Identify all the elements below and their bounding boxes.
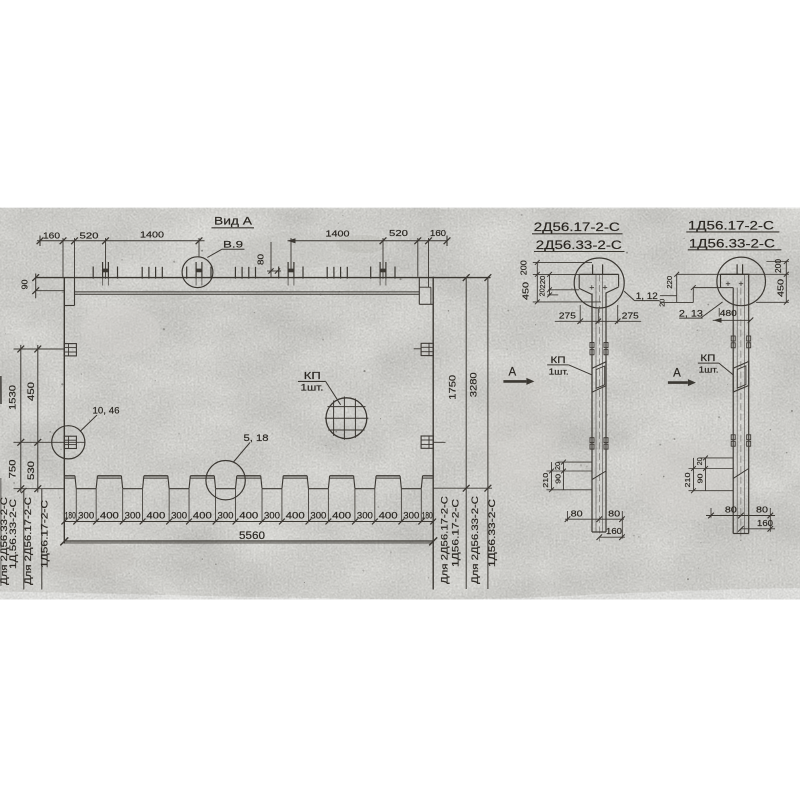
svg-text:400: 400	[146, 511, 165, 521]
svg-text:400: 400	[332, 511, 351, 521]
svg-text:210: 210	[683, 473, 692, 488]
svg-text:1шт.: 1шт.	[549, 366, 569, 376]
svg-text:400: 400	[193, 511, 212, 521]
svg-text:200: 200	[520, 260, 529, 276]
svg-text:220: 220	[665, 276, 674, 289]
svg-text:300: 300	[357, 511, 373, 521]
svg-text:1Д.56.33-2-С: 1Д.56.33-2-С	[8, 498, 18, 569]
svg-text:80: 80	[725, 505, 737, 515]
svg-text:В.9: В.9	[223, 239, 243, 250]
svg-text:Для 2Д56.17-2-С: Для 2Д56.17-2-С	[23, 496, 33, 585]
svg-text:1750: 1750	[447, 375, 457, 400]
svg-text:750: 750	[7, 460, 17, 479]
svg-text:275: 275	[622, 311, 639, 321]
svg-text:300: 300	[310, 511, 326, 521]
svg-text:80: 80	[571, 508, 583, 518]
svg-text:300: 300	[171, 511, 187, 521]
svg-text:450: 450	[26, 382, 36, 401]
svg-text:200: 200	[774, 258, 783, 273]
svg-text:1Д56.33-2-С: 1Д56.33-2-С	[487, 498, 497, 567]
svg-text:20: 20	[695, 457, 704, 465]
svg-text:1шт.: 1шт.	[699, 365, 719, 375]
svg-text:450: 450	[776, 278, 785, 297]
svg-text:220: 220	[538, 276, 547, 289]
svg-text:275: 275	[559, 311, 576, 321]
svg-text:1Д56.17-2-С: 1Д56.17-2-С	[40, 499, 50, 568]
svg-text:1, 12: 1, 12	[636, 291, 658, 301]
svg-text:160: 160	[430, 228, 446, 238]
svg-text:210: 210	[541, 473, 550, 488]
svg-text:А: А	[508, 366, 516, 378]
svg-text:1400: 1400	[326, 229, 350, 239]
svg-text:КП: КП	[700, 353, 715, 363]
svg-text:1Д56.33-2-С: 1Д56.33-2-С	[689, 238, 775, 251]
svg-text:20: 20	[657, 299, 666, 307]
svg-text:450: 450	[522, 281, 531, 300]
svg-text:КП: КП	[304, 370, 321, 382]
svg-text:90: 90	[21, 279, 30, 290]
svg-text:530: 530	[26, 461, 36, 480]
svg-text:160: 160	[606, 526, 622, 536]
svg-text:1400: 1400	[140, 230, 164, 240]
svg-text:5, 18: 5, 18	[244, 433, 269, 444]
svg-text:300: 300	[218, 511, 234, 521]
svg-text:400: 400	[239, 511, 258, 521]
svg-text:3280: 3280	[468, 372, 478, 397]
svg-text:180: 180	[65, 511, 76, 521]
svg-text:300: 300	[403, 511, 419, 521]
svg-text:1Д56.17-2-С: 1Д56.17-2-С	[688, 219, 774, 232]
svg-text:Для 2Д56.33-2-С: Для 2Д56.33-2-С	[470, 495, 480, 584]
svg-text:400: 400	[100, 511, 119, 521]
svg-text:300: 300	[264, 511, 280, 521]
svg-text:1530: 1530	[7, 385, 17, 410]
svg-text:160: 160	[43, 231, 60, 241]
svg-text:160: 160	[757, 518, 773, 528]
svg-text:520: 520	[389, 228, 408, 238]
svg-text:400: 400	[286, 511, 305, 521]
svg-text:КП: КП	[551, 355, 566, 365]
svg-text:480: 480	[720, 308, 737, 318]
svg-text:80: 80	[756, 505, 768, 515]
svg-text:520: 520	[80, 230, 99, 240]
svg-text:300: 300	[78, 511, 94, 521]
svg-text:А: А	[673, 367, 681, 379]
svg-text:80: 80	[257, 253, 266, 265]
svg-text:5560: 5560	[239, 530, 265, 542]
svg-text:Вид А: Вид А	[214, 215, 253, 227]
svg-text:90: 90	[696, 474, 705, 484]
svg-text:20: 20	[538, 288, 547, 296]
svg-text:80: 80	[608, 508, 620, 518]
svg-text:Для 2Д56.17-2-С: Для 2Д56.17-2-С	[439, 495, 449, 584]
svg-text:1шт.: 1шт.	[301, 383, 324, 394]
svg-text:400: 400	[379, 511, 398, 521]
svg-text:90: 90	[554, 474, 563, 484]
svg-text:300: 300	[125, 511, 141, 521]
svg-text:2, 13: 2, 13	[679, 308, 703, 318]
svg-text:1Д56.17-2-С: 1Д56.17-2-С	[451, 498, 461, 567]
svg-text:2Д56.33-2-С: 2Д56.33-2-С	[536, 239, 622, 252]
svg-text:180: 180	[422, 511, 433, 521]
svg-text:20: 20	[553, 462, 562, 470]
svg-text:2Д56.17-2-С: 2Д56.17-2-С	[534, 221, 620, 234]
